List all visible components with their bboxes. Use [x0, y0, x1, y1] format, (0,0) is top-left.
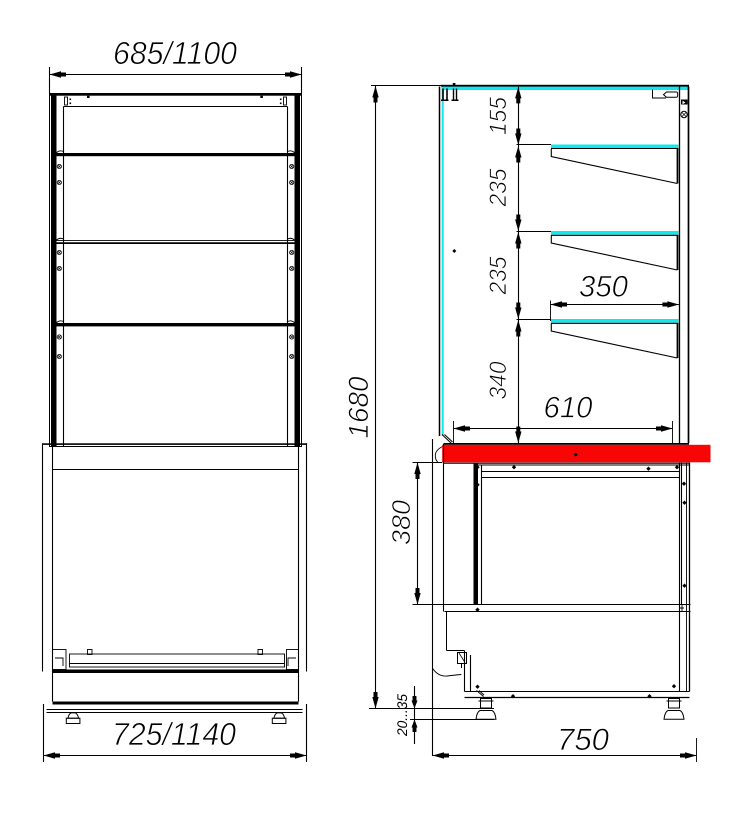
- svg-text:725/1140: 725/1140: [112, 716, 236, 752]
- svg-text:20...35: 20...35: [394, 694, 410, 737]
- svg-text:610: 610: [544, 392, 593, 425]
- svg-text:380: 380: [386, 499, 416, 545]
- svg-text:1680: 1680: [343, 376, 374, 438]
- svg-text:155: 155: [485, 96, 512, 135]
- svg-text:235: 235: [485, 168, 512, 208]
- svg-text:235: 235: [485, 256, 512, 296]
- svg-text:685/1100: 685/1100: [113, 35, 237, 71]
- svg-text:750: 750: [557, 722, 609, 757]
- svg-text:340: 340: [485, 361, 512, 400]
- svg-text:350: 350: [579, 271, 628, 304]
